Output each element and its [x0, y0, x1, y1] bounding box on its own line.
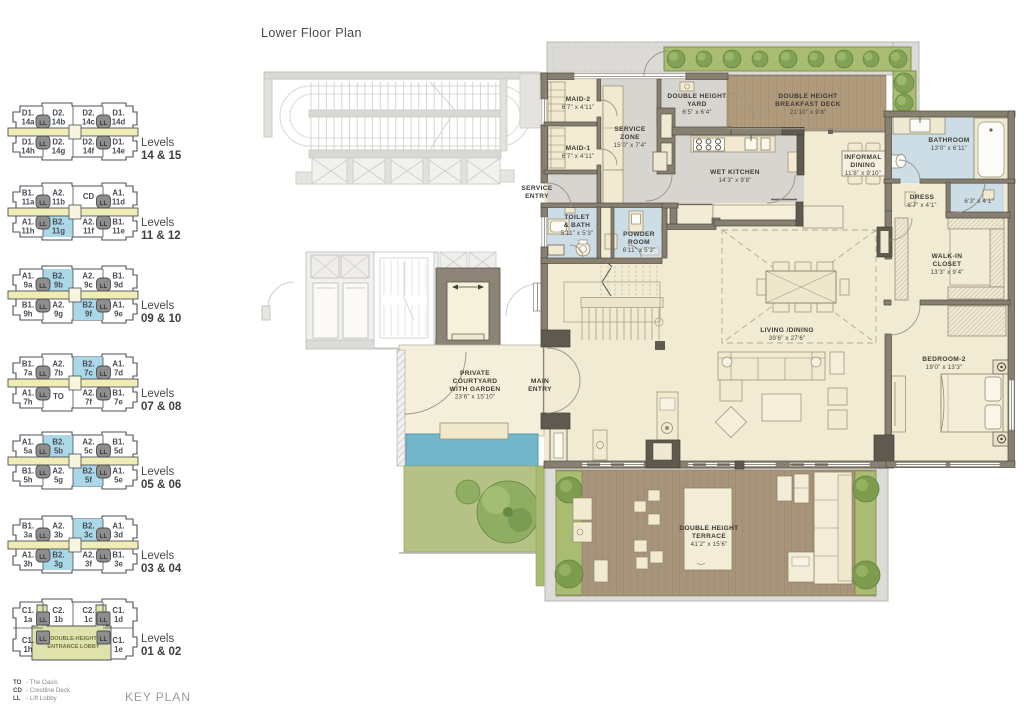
svg-text:TERRACE: TERRACE: [692, 533, 727, 540]
svg-text:09 & 10: 09 & 10: [141, 313, 181, 325]
svg-text:DOUBLE HEIGHT: DOUBLE HEIGHT: [679, 525, 738, 532]
svg-text:Levels: Levels: [141, 217, 174, 229]
svg-text:DOUBLE HEIGHT: DOUBLE HEIGHT: [667, 93, 726, 100]
svg-text:B1.: B1.: [112, 389, 124, 398]
svg-text:C1.: C1.: [22, 636, 34, 645]
svg-text:CD: CD: [83, 192, 95, 201]
svg-text:D2.: D2.: [82, 109, 94, 118]
svg-text:ENTRY: ENTRY: [525, 193, 549, 200]
svg-text:LL: LL: [100, 283, 108, 290]
svg-text:B2.: B2.: [52, 551, 64, 560]
svg-text:DRESS: DRESS: [910, 194, 935, 201]
svg-text:A1.: A1.: [112, 467, 124, 476]
svg-text:D2.: D2.: [52, 138, 64, 147]
svg-text:7a: 7a: [24, 369, 33, 378]
svg-text:LL: LL: [39, 533, 47, 540]
svg-text:3g: 3g: [54, 560, 63, 569]
svg-text:03 & 04: 03 & 04: [141, 563, 182, 575]
svg-text:PRIVATE: PRIVATE: [460, 370, 490, 377]
svg-text:A2.: A2.: [82, 272, 94, 281]
svg-text:9a: 9a: [24, 281, 33, 290]
svg-text:A2.: A2.: [52, 467, 64, 476]
svg-text:LL: LL: [100, 636, 108, 643]
svg-text:WALK-IN: WALK-IN: [932, 253, 963, 260]
svg-text:B1.: B1.: [112, 218, 124, 227]
svg-text:B2.: B2.: [82, 360, 94, 369]
svg-text:14’3” x 9’8”: 14’3” x 9’8”: [718, 177, 751, 184]
svg-text:POWDER: POWDER: [623, 231, 655, 238]
svg-text:14d: 14d: [112, 118, 126, 127]
svg-text:3c: 3c: [84, 531, 93, 540]
svg-text:14g: 14g: [52, 147, 66, 156]
svg-text:B2.: B2.: [52, 438, 64, 447]
svg-text:LL: LL: [39, 200, 47, 207]
svg-text:KEY PLAN: KEY PLAN: [125, 690, 191, 704]
svg-text:LL: LL: [100, 221, 108, 228]
svg-text:7b: 7b: [54, 369, 63, 378]
svg-text:B2.: B2.: [82, 522, 94, 531]
svg-text:D1.: D1.: [22, 138, 34, 147]
svg-text:LL: LL: [39, 283, 47, 290]
svg-text:11f: 11f: [83, 227, 94, 236]
svg-text:TOILET: TOILET: [564, 214, 589, 221]
svg-text:A1.: A1.: [22, 389, 34, 398]
svg-text:SERVICE: SERVICE: [614, 126, 646, 133]
svg-text:7d: 7d: [114, 369, 123, 378]
svg-text:14e: 14e: [112, 147, 126, 156]
svg-text:Levels: Levels: [141, 137, 174, 149]
svg-text:15’0” x 7’4”: 15’0” x 7’4”: [613, 142, 646, 149]
svg-text:LL: LL: [100, 200, 108, 207]
svg-text:1a: 1a: [24, 615, 33, 624]
svg-text:3f: 3f: [85, 560, 92, 569]
svg-text:5b: 5b: [54, 447, 63, 456]
svg-text:A1.: A1.: [112, 522, 124, 531]
svg-text:Levels: Levels: [141, 388, 174, 400]
svg-text:6’5” x 6’4”: 6’5” x 6’4”: [682, 109, 711, 116]
svg-text:21’10” x 9’8”: 21’10” x 9’8”: [790, 109, 827, 116]
svg-text:A1.: A1.: [112, 301, 124, 310]
svg-text:B2.: B2.: [52, 272, 64, 281]
svg-text:B1.: B1.: [22, 522, 34, 531]
svg-text:LL: LL: [100, 371, 108, 378]
svg-text:LL: LL: [100, 449, 108, 456]
svg-text:5’11” x 5’3”: 5’11” x 5’3”: [561, 230, 594, 237]
svg-text:01 & 02: 01 & 02: [141, 646, 181, 658]
svg-text:9h: 9h: [23, 310, 32, 319]
svg-text:B2.: B2.: [82, 467, 94, 476]
svg-text:14c: 14c: [82, 118, 96, 127]
svg-text:LIVING /DINING: LIVING /DINING: [760, 327, 814, 334]
svg-text:11e: 11e: [112, 227, 125, 236]
svg-text:C2.: C2.: [52, 606, 64, 615]
svg-text:41’2” x 15’6”: 41’2” x 15’6”: [691, 541, 728, 548]
svg-text:A2.: A2.: [82, 438, 94, 447]
svg-text:LL: LL: [39, 470, 47, 477]
svg-text:A1.: A1.: [22, 438, 34, 447]
svg-text:A1.: A1.: [22, 218, 34, 227]
svg-text:A2.: A2.: [52, 522, 64, 531]
svg-text:9c: 9c: [84, 281, 93, 290]
svg-text:14b: 14b: [52, 118, 66, 127]
svg-text:D2.: D2.: [82, 138, 94, 147]
svg-text:- The Oasis: - The Oasis: [26, 679, 58, 686]
svg-text:6’7” x 4’11”: 6’7” x 4’11”: [562, 153, 595, 160]
svg-text:A2.: A2.: [82, 389, 94, 398]
svg-text:C2.: C2.: [82, 606, 94, 615]
svg-text:A1.: A1.: [22, 272, 34, 281]
svg-text:3d: 3d: [114, 531, 123, 540]
svg-text:3b: 3b: [54, 531, 63, 540]
svg-text:Lower Floor Plan: Lower Floor Plan: [261, 26, 362, 40]
svg-text:9f: 9f: [85, 310, 92, 319]
svg-text:1e: 1e: [114, 645, 123, 654]
svg-text:11g: 11g: [52, 227, 65, 236]
svg-text:1d: 1d: [114, 615, 123, 624]
svg-text:COURTYARD: COURTYARD: [453, 378, 498, 385]
svg-text:11 & 12: 11 & 12: [141, 230, 181, 242]
svg-text:11’8” x 9’10”: 11’8” x 9’10”: [845, 170, 881, 177]
svg-text:A2.: A2.: [52, 301, 64, 310]
svg-text:Levels: Levels: [141, 466, 174, 478]
svg-text:LL: LL: [100, 141, 108, 148]
svg-text:ENTRY: ENTRY: [528, 386, 552, 393]
svg-text:YARD: YARD: [687, 101, 706, 108]
svg-text:14 & 15: 14 & 15: [141, 150, 182, 162]
svg-text:LL: LL: [39, 304, 47, 311]
svg-text:11h: 11h: [21, 227, 34, 236]
svg-text:- Lift Lobby: - Lift Lobby: [26, 695, 58, 702]
svg-text:1b: 1b: [54, 615, 63, 624]
svg-text:LL: LL: [39, 392, 47, 399]
svg-text:3e: 3e: [114, 560, 123, 569]
svg-text:MAID-1: MAID-1: [566, 145, 591, 152]
svg-text:A2.: A2.: [82, 551, 94, 560]
svg-text:B1.: B1.: [112, 551, 124, 560]
svg-text:LL: LL: [100, 392, 108, 399]
svg-text:LL: LL: [100, 533, 108, 540]
svg-text:LL: LL: [100, 617, 108, 624]
svg-text:ZONE: ZONE: [620, 134, 640, 141]
svg-text:23’6” x 15’10”: 23’6” x 15’10”: [455, 394, 495, 401]
svg-text:7e: 7e: [114, 398, 123, 407]
svg-text:D2.: D2.: [52, 109, 64, 118]
svg-text:B2.: B2.: [52, 218, 64, 227]
svg-text:C1.: C1.: [22, 606, 34, 615]
svg-text:WITH GARDEN: WITH GARDEN: [449, 386, 500, 393]
svg-text:SERVICE: SERVICE: [521, 185, 553, 192]
svg-text:ENTRANCE LOBBY: ENTRANCE LOBBY: [47, 644, 99, 650]
svg-text:6’3” x 4’1”: 6’3” x 4’1”: [964, 198, 993, 205]
svg-text:INFORMAL: INFORMAL: [844, 154, 882, 161]
svg-text:A2.: A2.: [82, 218, 94, 227]
svg-text:DINING: DINING: [850, 162, 875, 169]
svg-text:07 & 08: 07 & 08: [141, 401, 182, 413]
svg-text:5d: 5d: [114, 447, 123, 456]
svg-text:LL: LL: [39, 449, 47, 456]
svg-text:9b: 9b: [54, 281, 63, 290]
svg-text:5h: 5h: [23, 476, 32, 485]
svg-text:7c: 7c: [84, 369, 93, 378]
svg-text:DOUBLE HEIGHT: DOUBLE HEIGHT: [778, 93, 837, 100]
svg-text:9d: 9d: [114, 281, 123, 290]
svg-text:BREAKFAST DECK: BREAKFAST DECK: [775, 101, 841, 108]
svg-text:MAID-2: MAID-2: [566, 96, 591, 103]
svg-text:5c: 5c: [84, 447, 93, 456]
svg-text:6’7” x 4’1”: 6’7” x 4’1”: [907, 202, 936, 209]
svg-text:C1.: C1.: [112, 636, 124, 645]
svg-text:BEDROOM-2: BEDROOM-2: [922, 356, 965, 363]
svg-text:TO: TO: [53, 392, 64, 401]
svg-text:LL: LL: [39, 636, 47, 643]
svg-text:BATHROOM: BATHROOM: [928, 137, 969, 144]
svg-text:5g: 5g: [54, 476, 63, 485]
svg-text:A1.: A1.: [112, 189, 124, 198]
svg-text:6’7” x 4’11”: 6’7” x 4’11”: [562, 104, 595, 111]
svg-text:B1.: B1.: [112, 438, 124, 447]
svg-text:B2.: B2.: [82, 301, 94, 310]
svg-text:9g: 9g: [54, 310, 63, 319]
svg-text:1h: 1h: [23, 645, 32, 654]
svg-text:Levels: Levels: [141, 550, 174, 562]
svg-text:D1.: D1.: [112, 138, 124, 147]
svg-text:19’0” x 13’3”: 19’0” x 13’3”: [926, 364, 963, 371]
svg-text:MAIN: MAIN: [531, 378, 549, 385]
svg-text:A2.: A2.: [52, 189, 64, 198]
svg-text:- Crestline Deck: - Crestline Deck: [26, 687, 71, 694]
svg-text:LL: LL: [100, 470, 108, 477]
svg-text:Levels: Levels: [141, 300, 174, 312]
svg-text:Levels: Levels: [141, 633, 174, 645]
svg-text:D1.: D1.: [22, 109, 34, 118]
svg-text:9e: 9e: [114, 310, 123, 319]
svg-text:B1.: B1.: [22, 189, 34, 198]
svg-text:5f: 5f: [85, 476, 92, 485]
svg-text:B1.: B1.: [22, 301, 34, 310]
svg-text:11b: 11b: [52, 198, 65, 207]
svg-text:A2.: A2.: [52, 360, 64, 369]
svg-text:3h: 3h: [23, 560, 32, 569]
svg-text:7h: 7h: [23, 398, 32, 407]
svg-text:A1.: A1.: [22, 551, 34, 560]
svg-text:TO: TO: [13, 679, 22, 686]
svg-text:& BATH: & BATH: [564, 222, 591, 229]
svg-text:39’6” x 27’6”: 39’6” x 27’6”: [769, 335, 806, 342]
svg-text:B1.: B1.: [22, 467, 34, 476]
svg-text:LL: LL: [13, 695, 21, 702]
svg-text:B1.: B1.: [112, 272, 124, 281]
svg-text:1c: 1c: [84, 615, 93, 624]
svg-text:7f: 7f: [85, 398, 92, 407]
svg-text:14f: 14f: [83, 147, 95, 156]
svg-text:CLOSET: CLOSET: [933, 261, 962, 268]
svg-text:13’3” x 9’4”: 13’3” x 9’4”: [930, 269, 963, 276]
svg-text:05 & 06: 05 & 06: [141, 479, 181, 491]
svg-text:WET KITCHEN: WET KITCHEN: [710, 169, 760, 176]
svg-text:D1.: D1.: [112, 109, 124, 118]
svg-text:14a: 14a: [21, 118, 35, 127]
svg-text:DOUBLE-HEIGHT: DOUBLE-HEIGHT: [50, 636, 97, 642]
svg-text:LL: LL: [39, 141, 47, 148]
svg-text:ROOM: ROOM: [628, 239, 650, 246]
svg-text:LL: LL: [39, 617, 47, 624]
svg-text:6’11” x 5’3”: 6’11” x 5’3”: [623, 247, 656, 254]
svg-text:LL: LL: [100, 554, 108, 561]
svg-text:5e: 5e: [114, 476, 123, 485]
svg-text:5a: 5a: [24, 447, 33, 456]
svg-text:11a: 11a: [22, 198, 35, 207]
svg-text:LL: LL: [39, 554, 47, 561]
svg-text:LL: LL: [100, 304, 108, 311]
svg-text:11d: 11d: [112, 198, 125, 207]
svg-text:CD: CD: [13, 687, 22, 694]
svg-text:C1.: C1.: [112, 606, 124, 615]
svg-text:13’0” x 6’11”: 13’0” x 6’11”: [931, 145, 967, 152]
svg-text:A1.: A1.: [112, 360, 124, 369]
svg-text:LL: LL: [39, 221, 47, 228]
svg-text:LL: LL: [39, 120, 47, 127]
svg-text:LL: LL: [39, 371, 47, 378]
svg-text:14h: 14h: [21, 147, 35, 156]
svg-text:B1.: B1.: [22, 360, 34, 369]
svg-text:3a: 3a: [24, 531, 33, 540]
svg-text:LL: LL: [100, 120, 108, 127]
